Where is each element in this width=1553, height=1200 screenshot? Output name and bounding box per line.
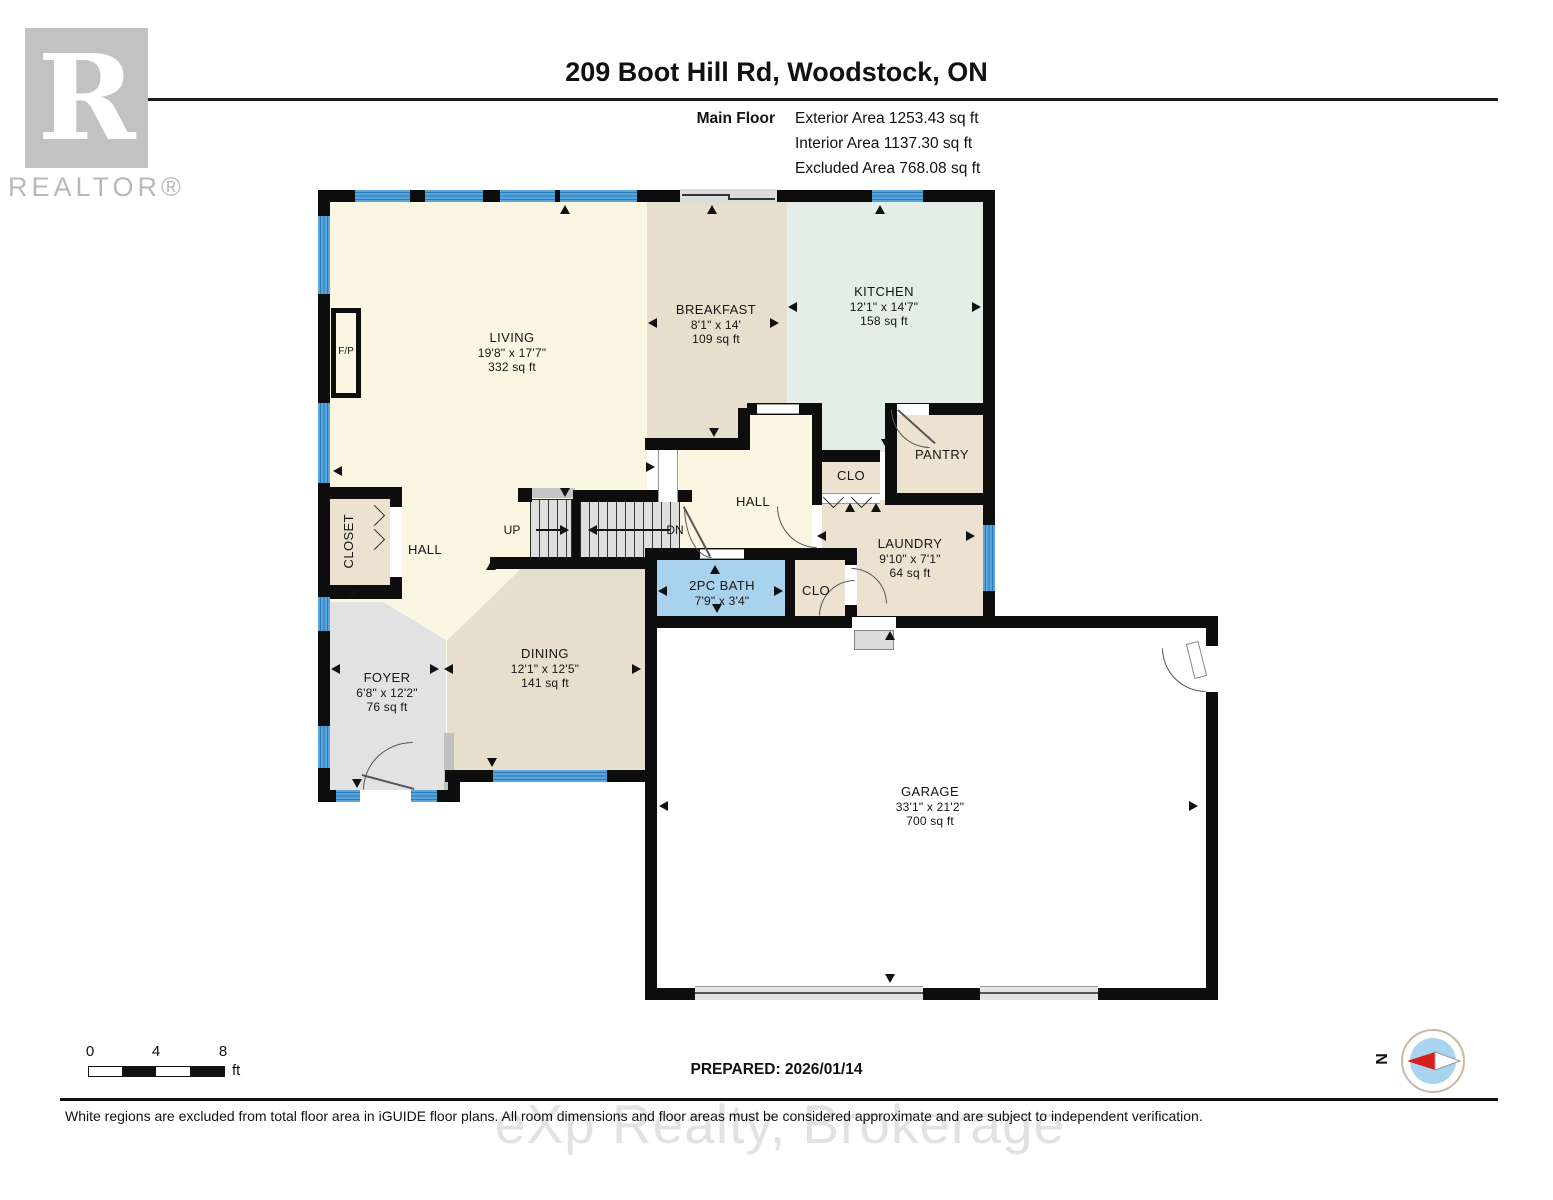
direction-arrow-icon [817, 531, 826, 541]
compass-icon [1400, 1028, 1466, 1099]
room-label-laundry: LAUNDRY 9'10" x 7'1" 64 sq ft [830, 537, 990, 581]
room-label-pantry: PANTRY [898, 448, 986, 463]
room-area: 64 sq ft [830, 566, 990, 581]
room-name: LAUNDRY [830, 537, 990, 552]
direction-arrow-icon [352, 779, 362, 788]
room-area: 76 sq ft [307, 700, 467, 715]
room-name: HALL [713, 495, 793, 510]
entry-door-opening [360, 790, 411, 802]
window [318, 216, 330, 294]
room-label-dining: DINING 12'1" x 12'5" 141 sq ft [465, 647, 625, 691]
floor-label: Main Floor [600, 110, 775, 128]
window-sidelight [336, 790, 360, 802]
wall-stairs-divider [572, 499, 580, 559]
direction-arrow-icon [486, 561, 496, 570]
room-area: 158 sq ft [804, 314, 964, 329]
direction-arrow-icon [349, 588, 359, 597]
room-name: CLO [820, 469, 882, 484]
room-dims: 8'1" x 14' [636, 318, 796, 333]
direction-arrow-icon [709, 428, 719, 437]
sliding-door-panel [729, 198, 775, 200]
direction-arrow-icon [560, 205, 570, 214]
room-dims: 9'10" x 7'1" [830, 552, 990, 567]
direction-arrow-icon [710, 565, 720, 574]
direction-arrow-icon [333, 466, 342, 476]
room-name: DINING [465, 647, 625, 662]
room-label-kitchen: KITCHEN 12'1" x 14'7" 158 sq ft [804, 285, 964, 329]
realtor-logo: R [25, 28, 148, 168]
stairs-up-label: UP [497, 523, 527, 537]
realtor-brand-text: REALTOR® [8, 172, 208, 203]
room-label-living: LIVING 19'8" x 17'7" 332 sq ft [432, 331, 592, 375]
direction-arrow-icon [632, 664, 641, 674]
direction-arrow-icon [560, 488, 570, 497]
room-label-foyer: FOYER 6'8" x 12'2" 76 sq ft [307, 671, 467, 715]
direction-arrow-icon [972, 302, 981, 312]
window [500, 190, 555, 202]
stairs-up-arrow-icon [560, 525, 569, 535]
wall-landing-corner [518, 488, 532, 502]
room-label-hall-center: HALL [713, 495, 793, 510]
room-dims: 12'1" x 14'7" [804, 300, 964, 315]
direction-arrow-icon [646, 462, 655, 472]
window [493, 770, 607, 782]
room-dims: 19'8" x 17'7" [432, 346, 592, 361]
room-label-clo-kitchen: CLO [820, 469, 882, 484]
title-divider-line [50, 98, 1498, 101]
direction-arrow-icon [707, 205, 717, 214]
room-label-clo-bath: CLO [791, 584, 841, 599]
window [318, 597, 330, 631]
room-dims: 6'8" x 12'2" [307, 686, 467, 701]
prepared-date: PREPARED: 2026/01/14 [0, 1061, 1553, 1079]
direction-arrow-icon [881, 439, 891, 448]
stairs-up-arrow-line [536, 529, 562, 531]
room-name: BREAKFAST [636, 303, 796, 318]
wall-hall-right [812, 408, 822, 505]
room-area: 141 sq ft [465, 676, 625, 691]
scale-tick-4: 4 [146, 1043, 166, 1060]
wall-closet-right-top [390, 487, 402, 507]
opening-column [658, 450, 678, 502]
direction-arrow-icon [1189, 801, 1198, 811]
direction-arrow-icon [875, 205, 885, 214]
garage-door-line [695, 992, 923, 994]
room-name: KITCHEN [804, 285, 964, 300]
window [872, 190, 923, 202]
stairs-dn-label: DN [658, 523, 692, 537]
scale-tick-8: 8 [213, 1043, 233, 1060]
direction-arrow-icon [885, 631, 895, 640]
wall-house-bottom [645, 616, 995, 628]
scale-tick-0: 0 [80, 1043, 100, 1060]
window [425, 190, 483, 202]
garage-side-door-opening [1206, 646, 1218, 692]
direction-arrow-icon [487, 758, 497, 767]
window [318, 403, 330, 483]
window [560, 190, 637, 202]
fireplace-label: F/P [331, 346, 361, 357]
room-label-hall-left: HALL [385, 543, 465, 558]
room-name: LIVING [432, 331, 592, 346]
floor-plan-page: R REALTOR® 209 Boot Hill Rd, Woodstock, … [0, 0, 1553, 1200]
exterior-area-text: Exterior Area 1253.43 sq ft [795, 110, 1115, 128]
interior-area-text: Interior Area 1137.30 sq ft [795, 135, 1115, 153]
room-dims: 7'9" x 3'4" [652, 594, 792, 609]
wall-pantry-bottom [885, 493, 983, 505]
room-area: 700 sq ft [850, 814, 1010, 829]
garage-entry-opening [852, 617, 896, 628]
wall-foyer-step [448, 770, 460, 802]
disclaimer-text: White regions are excluded from total fl… [65, 1108, 1203, 1124]
room-name: GARAGE [850, 785, 1010, 800]
wall-clo-top [822, 450, 880, 462]
room-dims: 12'1" x 12'5" [465, 662, 625, 677]
compass-north-label: N [1374, 1053, 1392, 1065]
window-sidelight [411, 790, 437, 802]
room-name: PANTRY [898, 448, 986, 463]
room-area: 332 sq ft [432, 360, 592, 375]
room-name: FOYER [307, 671, 467, 686]
room-label-breakfast: BREAKFAST 8'1" x 14' 109 sq ft [636, 303, 796, 347]
room-name: CLOSET [342, 501, 357, 581]
closet-door-opening [390, 507, 402, 577]
room-area: 109 sq ft [636, 332, 796, 347]
wall-breakfast-bottom [645, 438, 745, 450]
room-label-closet: CLOSET [342, 501, 357, 581]
brokerage-watermark: eXp Realty, Brokerage [420, 1092, 1140, 1156]
direction-arrow-icon [885, 974, 895, 983]
room-name: CLO [791, 584, 841, 599]
room-name: 2PC BATH [652, 579, 792, 594]
excluded-area-text: Excluded Area 768.08 sq ft [795, 160, 1115, 178]
room-label-garage: GARAGE 33'1" x 21'2" 700 sq ft [850, 785, 1010, 829]
wall-garage-top [995, 616, 1218, 628]
direction-arrow-icon [845, 503, 855, 512]
window [318, 726, 330, 768]
hall-opening [757, 404, 799, 414]
direction-arrow-icon [659, 801, 668, 811]
room-label-bath: 2PC BATH 7'9" x 3'4" [652, 579, 792, 608]
window [355, 190, 410, 202]
direction-arrow-icon [871, 503, 881, 512]
stairs-down-arrow-icon [588, 525, 597, 535]
page-title: 209 Boot Hill Rd, Woodstock, ON [0, 57, 1553, 88]
room-name: HALL [385, 543, 465, 558]
garage-door-line [980, 992, 1098, 994]
wall-closet-right-bottom [390, 577, 402, 599]
sliding-door-panel [682, 194, 730, 196]
room-dims: 33'1" x 21'2" [850, 800, 1010, 815]
